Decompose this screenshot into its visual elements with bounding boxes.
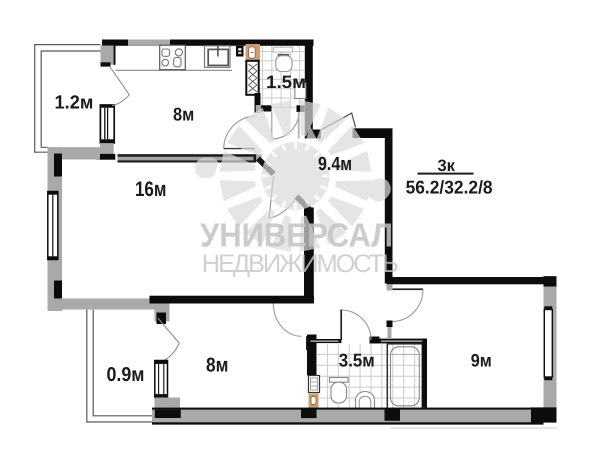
svg-text:УНИВЕРСАЛ: УНИВЕРСАЛ xyxy=(200,218,393,255)
svg-text:9.4м: 9.4м xyxy=(318,154,352,175)
svg-text:56.2/32.2/8: 56.2/32.2/8 xyxy=(406,176,493,197)
svg-text:3.5м: 3.5м xyxy=(339,350,375,371)
svg-text:3к: 3к xyxy=(437,157,455,175)
svg-text:1.5м: 1.5м xyxy=(266,72,306,92)
svg-text:8м: 8м xyxy=(206,355,228,377)
svg-text:НЕДВИЖИМОСТЬ: НЕДВИЖИМОСТЬ xyxy=(202,250,399,278)
svg-text:0.9м: 0.9м xyxy=(107,364,145,386)
svg-text:9м: 9м xyxy=(471,351,492,371)
svg-text:16м: 16м xyxy=(135,178,167,201)
svg-text:1.2м: 1.2м xyxy=(55,93,94,114)
svg-text:8м: 8м xyxy=(173,104,194,125)
